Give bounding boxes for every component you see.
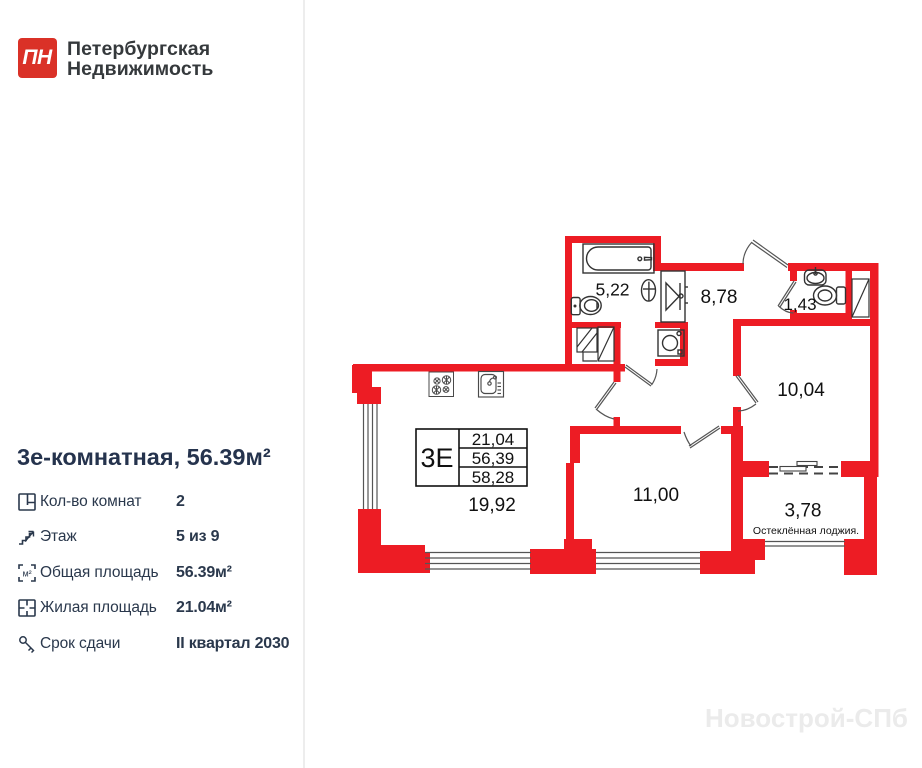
svg-text:Остеклённая лоджия.: Остеклённая лоджия. [753, 525, 859, 537]
svg-text:56,39: 56,39 [472, 449, 515, 468]
svg-text:58,28: 58,28 [472, 468, 515, 487]
svg-text:1,43: 1,43 [783, 295, 816, 314]
svg-text:19,92: 19,92 [468, 495, 516, 516]
svg-text:5,22: 5,22 [595, 280, 629, 300]
svg-text:10,04: 10,04 [777, 380, 825, 401]
svg-text:3,78: 3,78 [785, 501, 822, 522]
svg-text:8,78: 8,78 [701, 287, 738, 308]
svg-text:11,00: 11,00 [633, 485, 679, 506]
svg-text:21,04: 21,04 [472, 430, 515, 449]
svg-text:3Е: 3Е [420, 443, 453, 473]
